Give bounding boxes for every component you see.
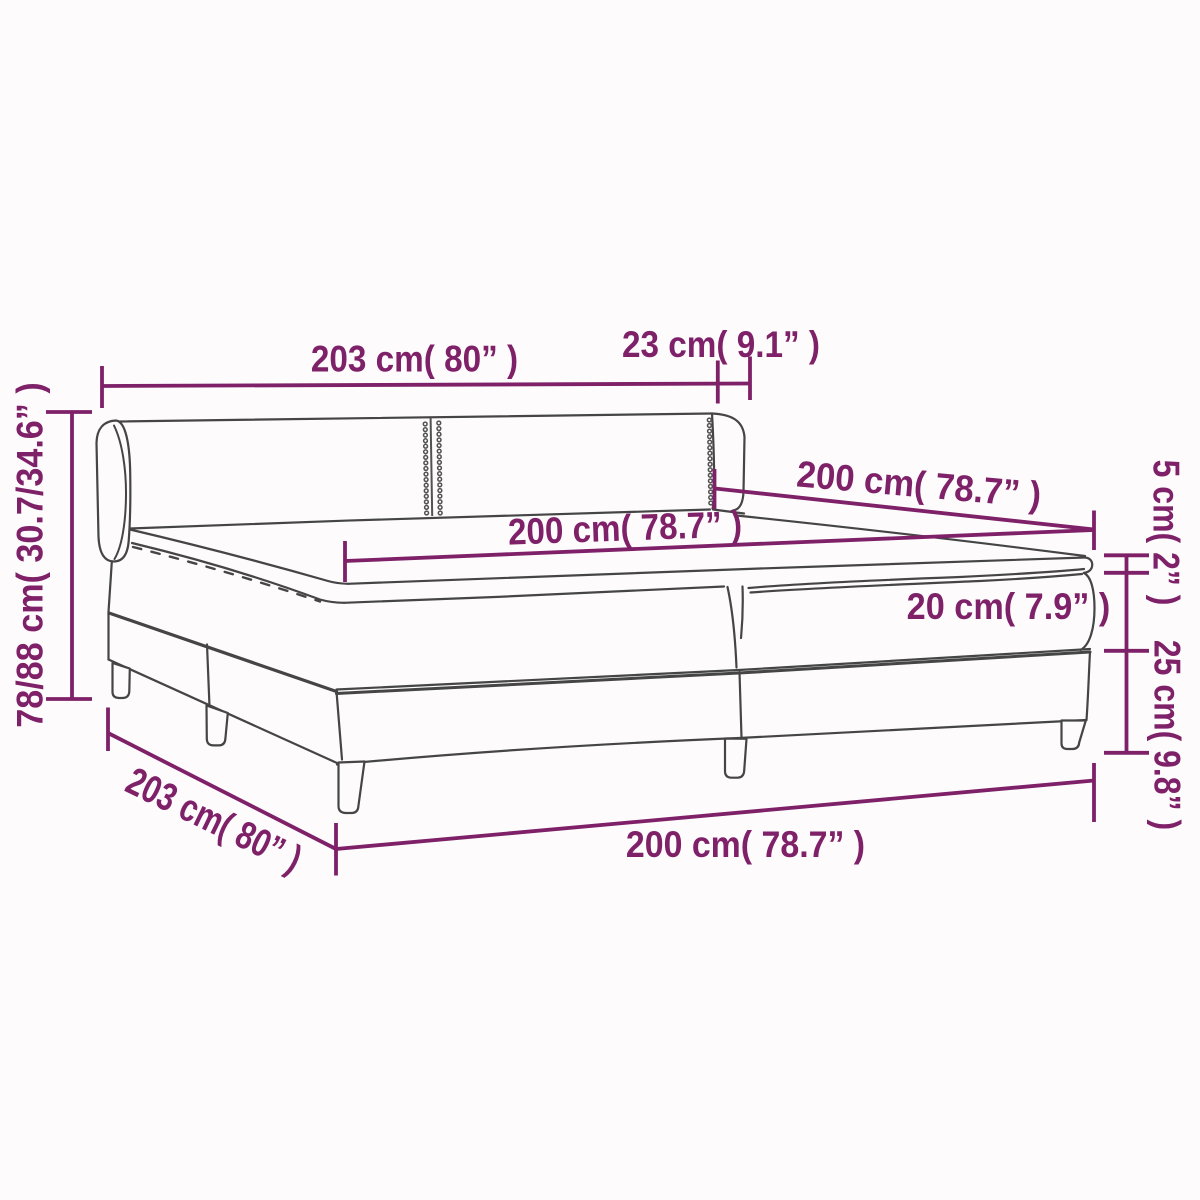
svg-text:203 cm( 80” ): 203 cm( 80” ): [311, 339, 518, 380]
svg-text:200 cm( 78.7” ): 200 cm( 78.7” ): [507, 504, 742, 553]
svg-text:20 cm( 7.9” ): 20 cm( 7.9” ): [907, 586, 1111, 628]
svg-text:25 cm( 9.8” ): 25 cm( 9.8” ): [1146, 640, 1187, 830]
svg-text:78/88 cm( 30.7/34.6” ): 78/88 cm( 30.7/34.6” ): [9, 382, 51, 727]
svg-text:200 cm( 78.7” ): 200 cm( 78.7” ): [626, 824, 865, 866]
svg-text:23 cm( 9.1” ): 23 cm( 9.1” ): [622, 324, 820, 365]
svg-text:5 cm( 2” ): 5 cm( 2” ): [1145, 460, 1186, 606]
